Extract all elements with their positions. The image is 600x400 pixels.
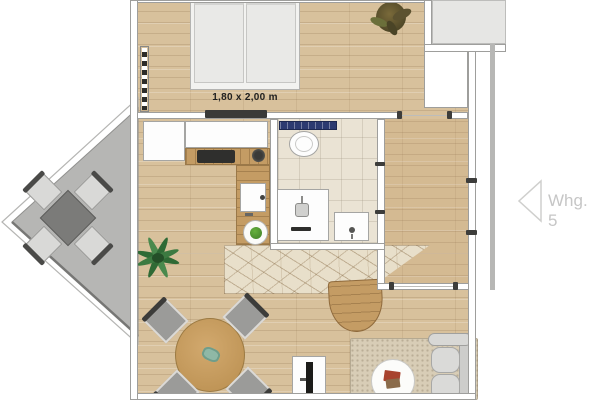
wall-left <box>130 0 138 400</box>
wall-notch-west <box>424 0 432 50</box>
wall-top <box>137 0 430 3</box>
entrance-door-jamb <box>466 178 477 183</box>
apartment-nav[interactable]: Whg. 5 <box>516 178 600 224</box>
wall-bathroom-east <box>377 119 385 290</box>
shower-icon <box>277 189 329 241</box>
door-threshold <box>400 115 449 116</box>
floor-plan: 1,80 x 2,00 m Whg. 5 <box>0 0 600 400</box>
wall-bedroom-south <box>137 112 400 119</box>
fruit-bowl-icon <box>243 220 268 245</box>
door-jamb <box>375 162 385 166</box>
nav-unit-label[interactable]: Whg. 5 <box>548 191 600 231</box>
wall-bottom <box>137 393 476 400</box>
double-bed-icon <box>190 0 300 90</box>
door-jamb <box>375 210 385 214</box>
door-jamb <box>397 111 402 119</box>
bathroom-sink-icon <box>334 212 369 241</box>
kitchen-cabinet-icon <box>185 121 268 148</box>
sofa-cushion <box>431 347 460 373</box>
nav-left-arrow-icon[interactable] <box>516 178 544 224</box>
entrance-door-jamb <box>466 230 477 235</box>
door-threshold <box>391 286 455 287</box>
plant-icon <box>134 232 182 284</box>
corridor-wall-edge <box>490 44 495 290</box>
door-jamb <box>453 282 458 290</box>
cooktop-icon <box>197 150 235 163</box>
door-jamb <box>389 282 394 290</box>
sofa-armrest <box>428 333 472 346</box>
pot-icon <box>252 149 265 162</box>
bathroom-wall-tiles <box>279 121 337 130</box>
kitchen-cabinet-icon <box>143 121 185 161</box>
bed-dimension-label: 1,80 x 2,00 m <box>190 92 300 103</box>
toilet-icon <box>289 131 319 157</box>
neighbor-unit-area <box>432 0 506 44</box>
wall-right <box>468 44 476 400</box>
kitchen-sink-icon <box>240 183 266 212</box>
radiator-icon <box>140 46 149 112</box>
wall-bathroom-south <box>270 243 385 250</box>
door-jamb <box>447 111 452 119</box>
sideboard-icon <box>205 110 267 118</box>
plant-icon <box>368 0 414 40</box>
wall-void <box>424 44 468 108</box>
wall-bathroom-west <box>270 119 278 250</box>
